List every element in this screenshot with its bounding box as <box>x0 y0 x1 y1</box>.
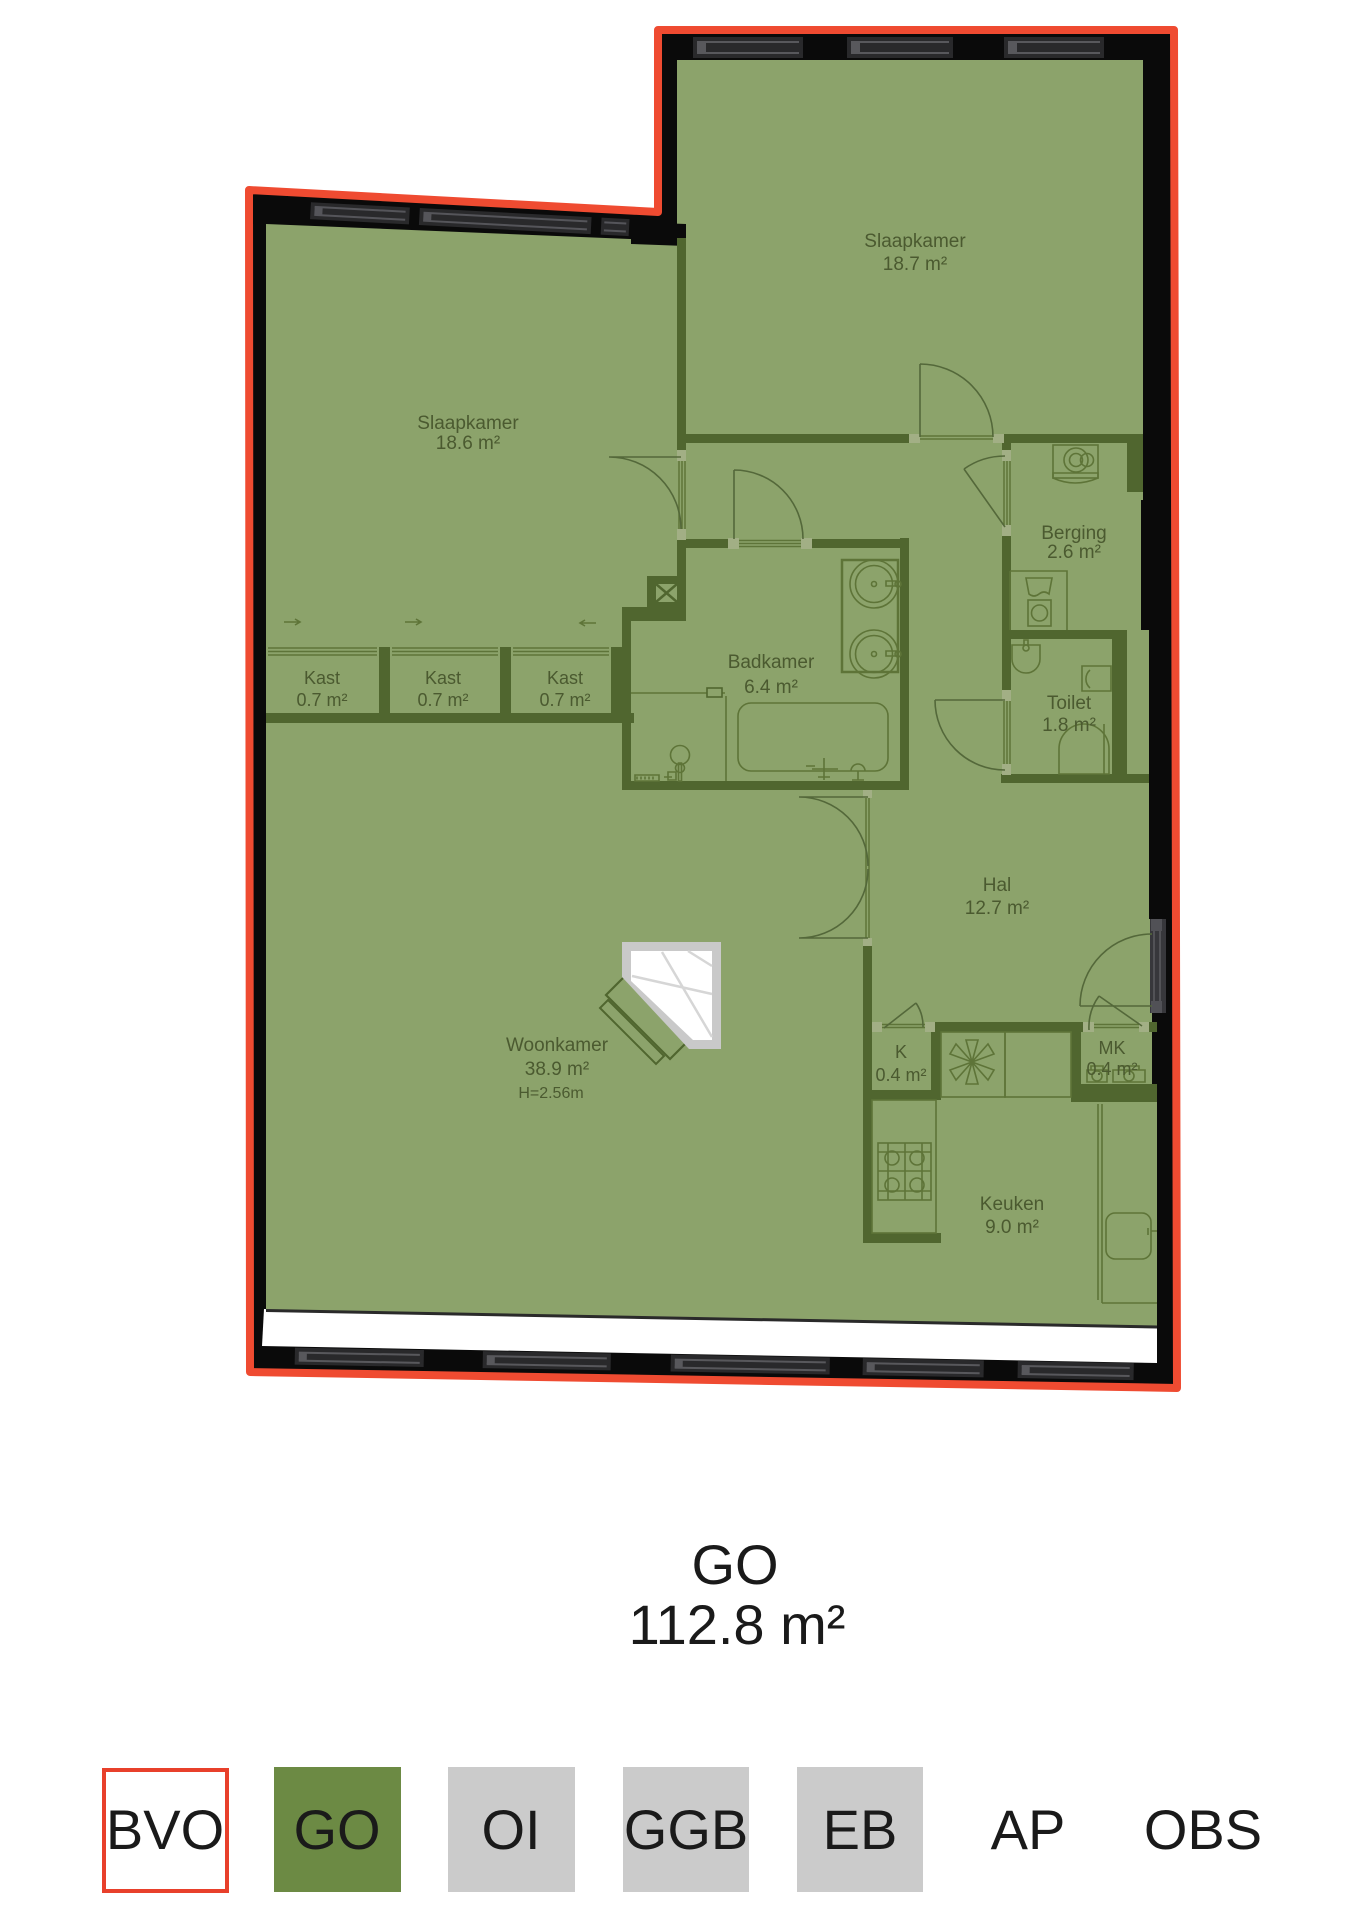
svg-text:BVO: BVO <box>106 1798 224 1861</box>
svg-text:Berging: Berging <box>1041 523 1107 544</box>
svg-text:0.7 m²: 0.7 m² <box>417 690 468 710</box>
svg-text:0.4 m²: 0.4 m² <box>1086 1059 1137 1079</box>
svg-text:Slaapkamer: Slaapkamer <box>864 231 966 252</box>
svg-text:Hal: Hal <box>983 875 1012 896</box>
svg-text:Slaapkamer: Slaapkamer <box>417 413 519 434</box>
svg-text:Badkamer: Badkamer <box>728 652 815 673</box>
svg-text:OBS: OBS <box>1144 1798 1262 1861</box>
svg-text:Keuken: Keuken <box>980 1194 1044 1215</box>
svg-text:Kast: Kast <box>547 668 583 688</box>
svg-text:K: K <box>895 1042 907 1062</box>
svg-text:MK: MK <box>1099 1038 1126 1058</box>
svg-text:H=2.56m: H=2.56m <box>518 1085 583 1102</box>
svg-text:OI: OI <box>481 1798 540 1861</box>
svg-text:0.7 m²: 0.7 m² <box>539 690 590 710</box>
svg-text:0.7 m²: 0.7 m² <box>296 690 347 710</box>
svg-text:GO: GO <box>691 1533 778 1596</box>
svg-text:GO: GO <box>293 1798 380 1861</box>
svg-text:38.9 m²: 38.9 m² <box>525 1059 589 1080</box>
svg-text:Kast: Kast <box>304 668 340 688</box>
svg-text:2.6 m²: 2.6 m² <box>1047 542 1101 563</box>
svg-text:GGB: GGB <box>624 1798 748 1861</box>
svg-text:AP: AP <box>991 1798 1066 1861</box>
svg-text:Woonkamer: Woonkamer <box>506 1035 609 1056</box>
svg-text:112.8 m²: 112.8 m² <box>629 1593 846 1656</box>
svg-text:18.7 m²: 18.7 m² <box>883 254 947 275</box>
svg-text:Kast: Kast <box>425 668 461 688</box>
svg-text:Toilet: Toilet <box>1047 693 1092 714</box>
svg-text:12.7 m²: 12.7 m² <box>965 898 1029 919</box>
svg-text:6.4 m²: 6.4 m² <box>744 677 798 698</box>
svg-text:18.6 m²: 18.6 m² <box>436 433 500 454</box>
svg-text:9.0 m²: 9.0 m² <box>985 1217 1039 1238</box>
svg-text:1.8 m²: 1.8 m² <box>1042 715 1096 736</box>
svg-text:EB: EB <box>823 1798 898 1861</box>
svg-text:0.4 m²: 0.4 m² <box>875 1065 926 1085</box>
